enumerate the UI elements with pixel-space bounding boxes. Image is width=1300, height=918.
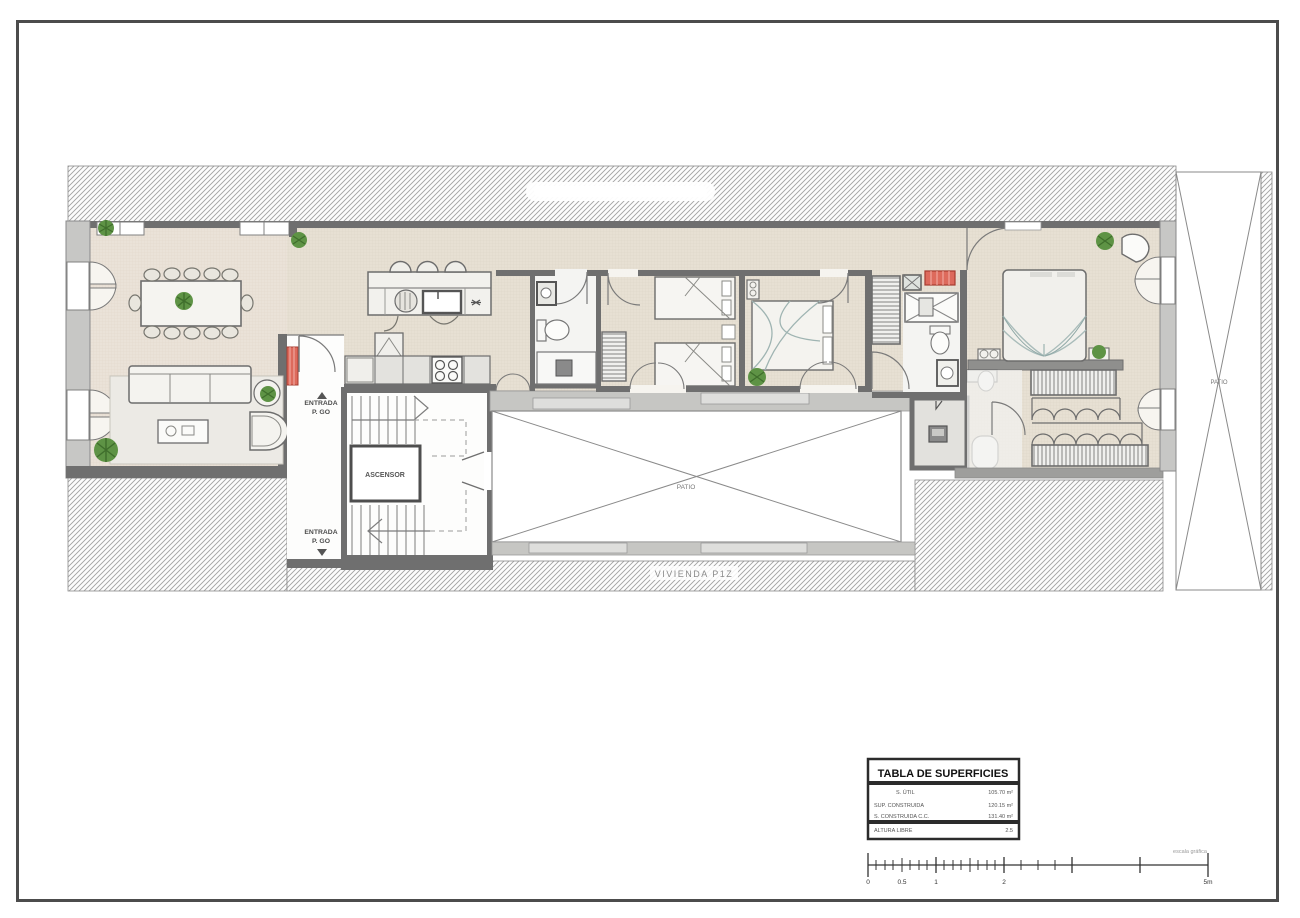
svg-text:2.5: 2.5 <box>1005 828 1013 834</box>
svg-text:S. CONSTRUIDA C.C.: S. CONSTRUIDA C.C. <box>874 814 930 820</box>
svg-text:ENTRADA: ENTRADA <box>304 529 337 536</box>
svg-text:TABLA DE SUPERFICIES: TABLA DE SUPERFICIES <box>878 768 1009 780</box>
svg-text:S. ÚTIL: S. ÚTIL <box>896 789 915 796</box>
svg-text:P. GO: P. GO <box>312 538 330 545</box>
svg-text:VIVIENDA P1Z: VIVIENDA P1Z <box>655 569 734 579</box>
svg-text:120.15 m²: 120.15 m² <box>988 803 1013 809</box>
svg-text:escala gráfica: escala gráfica <box>1173 849 1208 855</box>
svg-text:0: 0 <box>866 879 870 886</box>
svg-text:5m: 5m <box>1203 879 1212 886</box>
svg-text:ALTURA LIBRE: ALTURA LIBRE <box>874 828 913 834</box>
svg-text:105.70 m²: 105.70 m² <box>988 790 1013 796</box>
svg-text:SUP. CONSTRUIDA: SUP. CONSTRUIDA <box>874 803 924 809</box>
svg-text:0.5: 0.5 <box>897 879 906 886</box>
svg-text:1: 1 <box>934 879 938 886</box>
svg-text:ENTRADA: ENTRADA <box>304 400 337 407</box>
svg-text:PATIO: PATIO <box>1210 380 1227 386</box>
svg-text:2: 2 <box>1002 879 1006 886</box>
svg-text:ASCENSOR: ASCENSOR <box>365 472 405 479</box>
svg-text:P. GO: P. GO <box>312 409 330 416</box>
svg-text:131.40 m²: 131.40 m² <box>988 814 1013 820</box>
svg-text:PATIO: PATIO <box>677 484 696 491</box>
